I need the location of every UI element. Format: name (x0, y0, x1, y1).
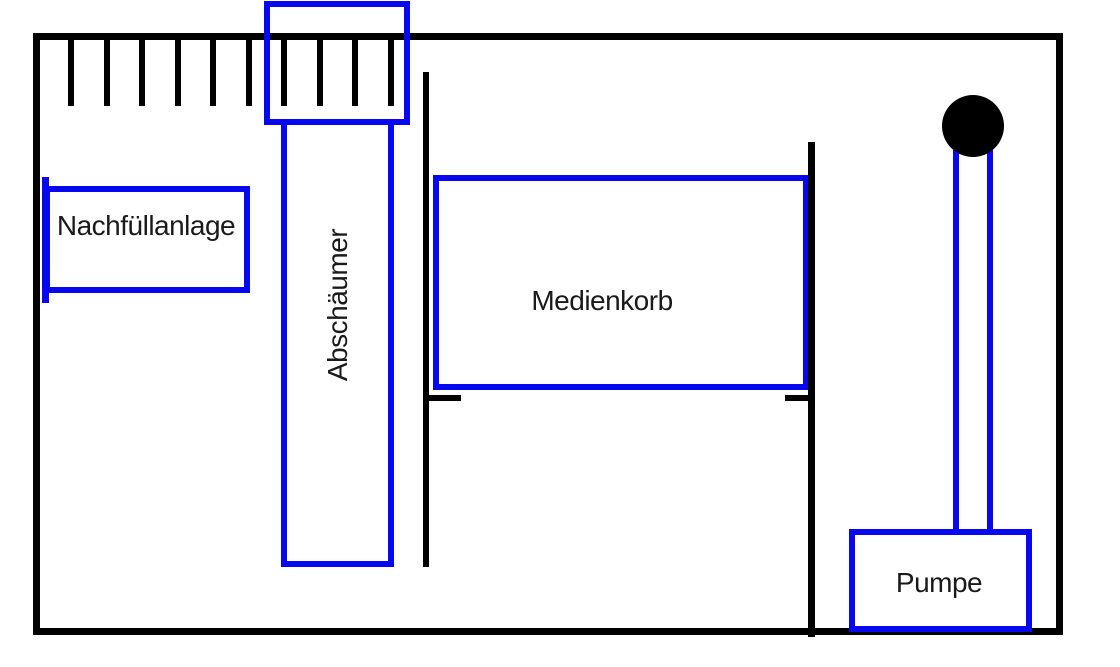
refill-unit-label: Nachfüllanlage (57, 210, 235, 242)
comb-tooth (175, 36, 181, 106)
comb-tooth (104, 36, 110, 106)
right-baffle-wall (808, 142, 815, 637)
media-basket-label: Medienkorb (531, 285, 672, 317)
pump-riser-pipe-right (987, 150, 993, 532)
pipe-outlet-circle-icon (942, 95, 1004, 157)
pump-riser-pipe-left (953, 150, 959, 532)
skimmer-label: Abschäumer (322, 229, 354, 381)
comb-tooth (210, 36, 216, 106)
comb-tooth (68, 36, 74, 106)
comb-tooth (246, 36, 252, 106)
left-baffle-wall (423, 72, 429, 567)
sump-diagram-canvas: Abschäumer Nachfüllanlage Medienkorb Pum… (0, 0, 1120, 667)
pump-label: Pumpe (896, 567, 982, 599)
comb-tooth (139, 36, 145, 106)
media-basket-box (433, 175, 809, 390)
skimmer-inlet-box (264, 1, 410, 125)
media-basket-support-left (424, 395, 461, 401)
media-basket-support-right (785, 395, 812, 401)
